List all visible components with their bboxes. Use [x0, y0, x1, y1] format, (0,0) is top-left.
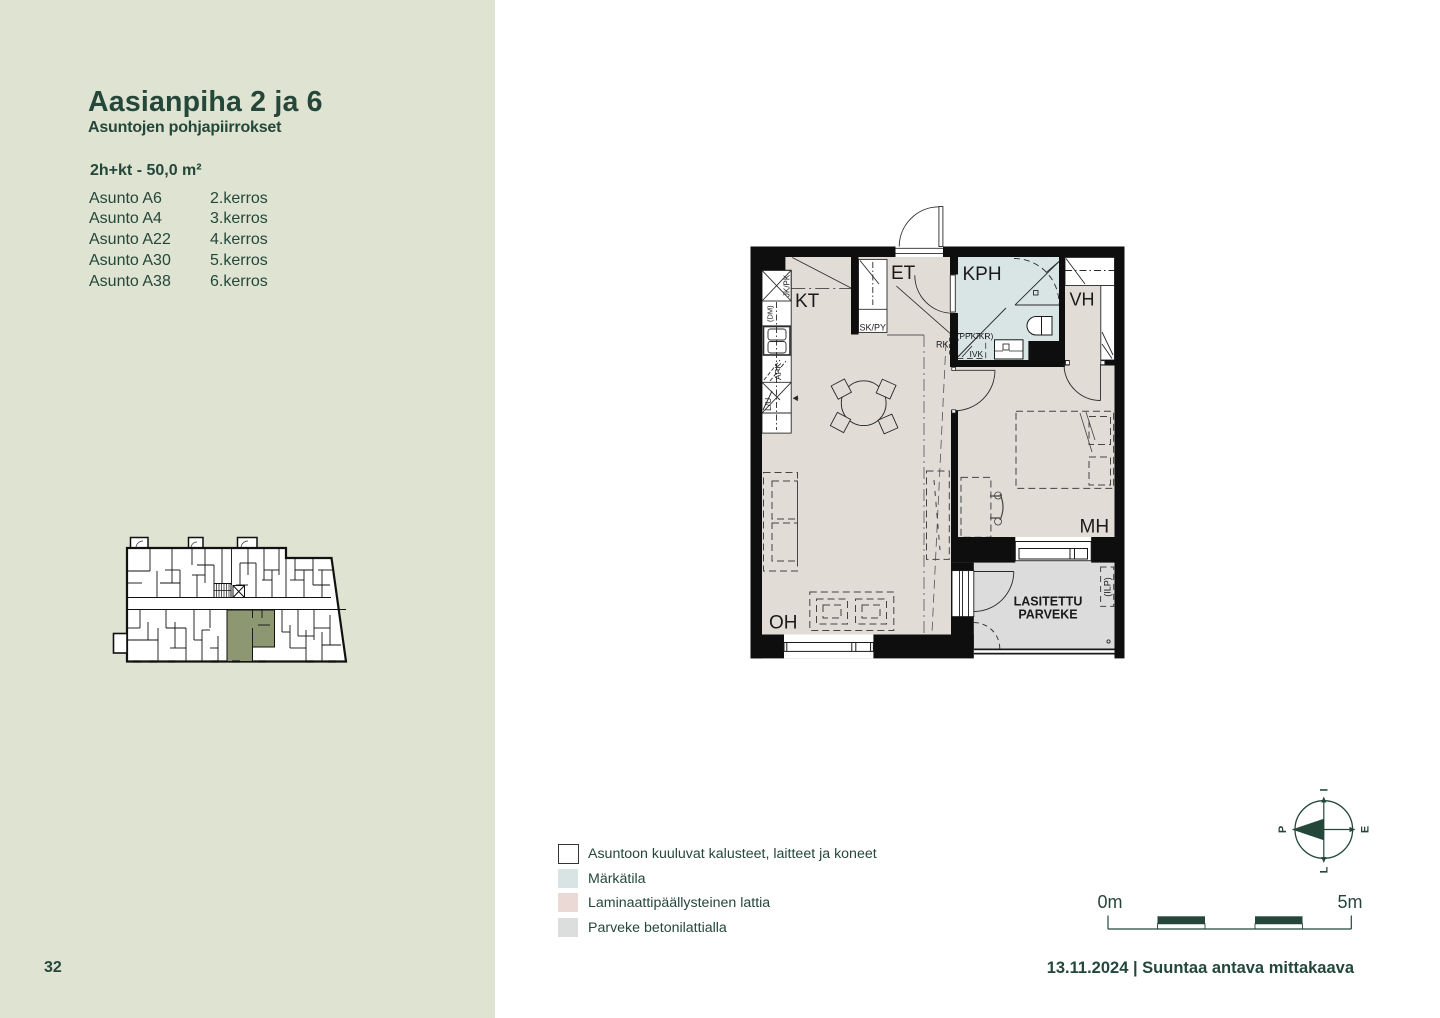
svg-text:(DM): (DM) [766, 305, 775, 322]
svg-text:SK/PY: SK/PY [860, 323, 887, 333]
svg-text:E: E [1360, 826, 1372, 833]
svg-text:JK/PK: JK/PK [783, 274, 792, 297]
svg-text:L: L [1318, 866, 1330, 873]
svg-text:PARVEKE: PARVEKE [1018, 608, 1077, 622]
svg-text:KT: KT [795, 291, 820, 312]
svg-text:OH: OH [769, 613, 798, 634]
svg-text:(ILP): (ILP) [1103, 577, 1113, 597]
svg-text:L/U: L/U [763, 398, 773, 411]
svg-text:MH: MH [1080, 517, 1110, 538]
svg-text:ET: ET [891, 263, 916, 284]
svg-text:VH: VH [1070, 290, 1095, 310]
svg-text:KPH: KPH [963, 264, 1002, 285]
svg-text:APK: APK [773, 363, 783, 380]
svg-text:0m: 0m [1098, 892, 1123, 912]
svg-text:P: P [1277, 826, 1289, 833]
svg-text:(PPK/KR): (PPK/KR) [957, 331, 994, 341]
svg-text:I: I [1318, 788, 1330, 791]
svg-text:LASITETTU: LASITETTU [1014, 595, 1083, 609]
svg-text:IVK: IVK [970, 349, 984, 359]
svg-text:RK: RK [936, 340, 949, 350]
svg-text:5m: 5m [1338, 892, 1363, 912]
